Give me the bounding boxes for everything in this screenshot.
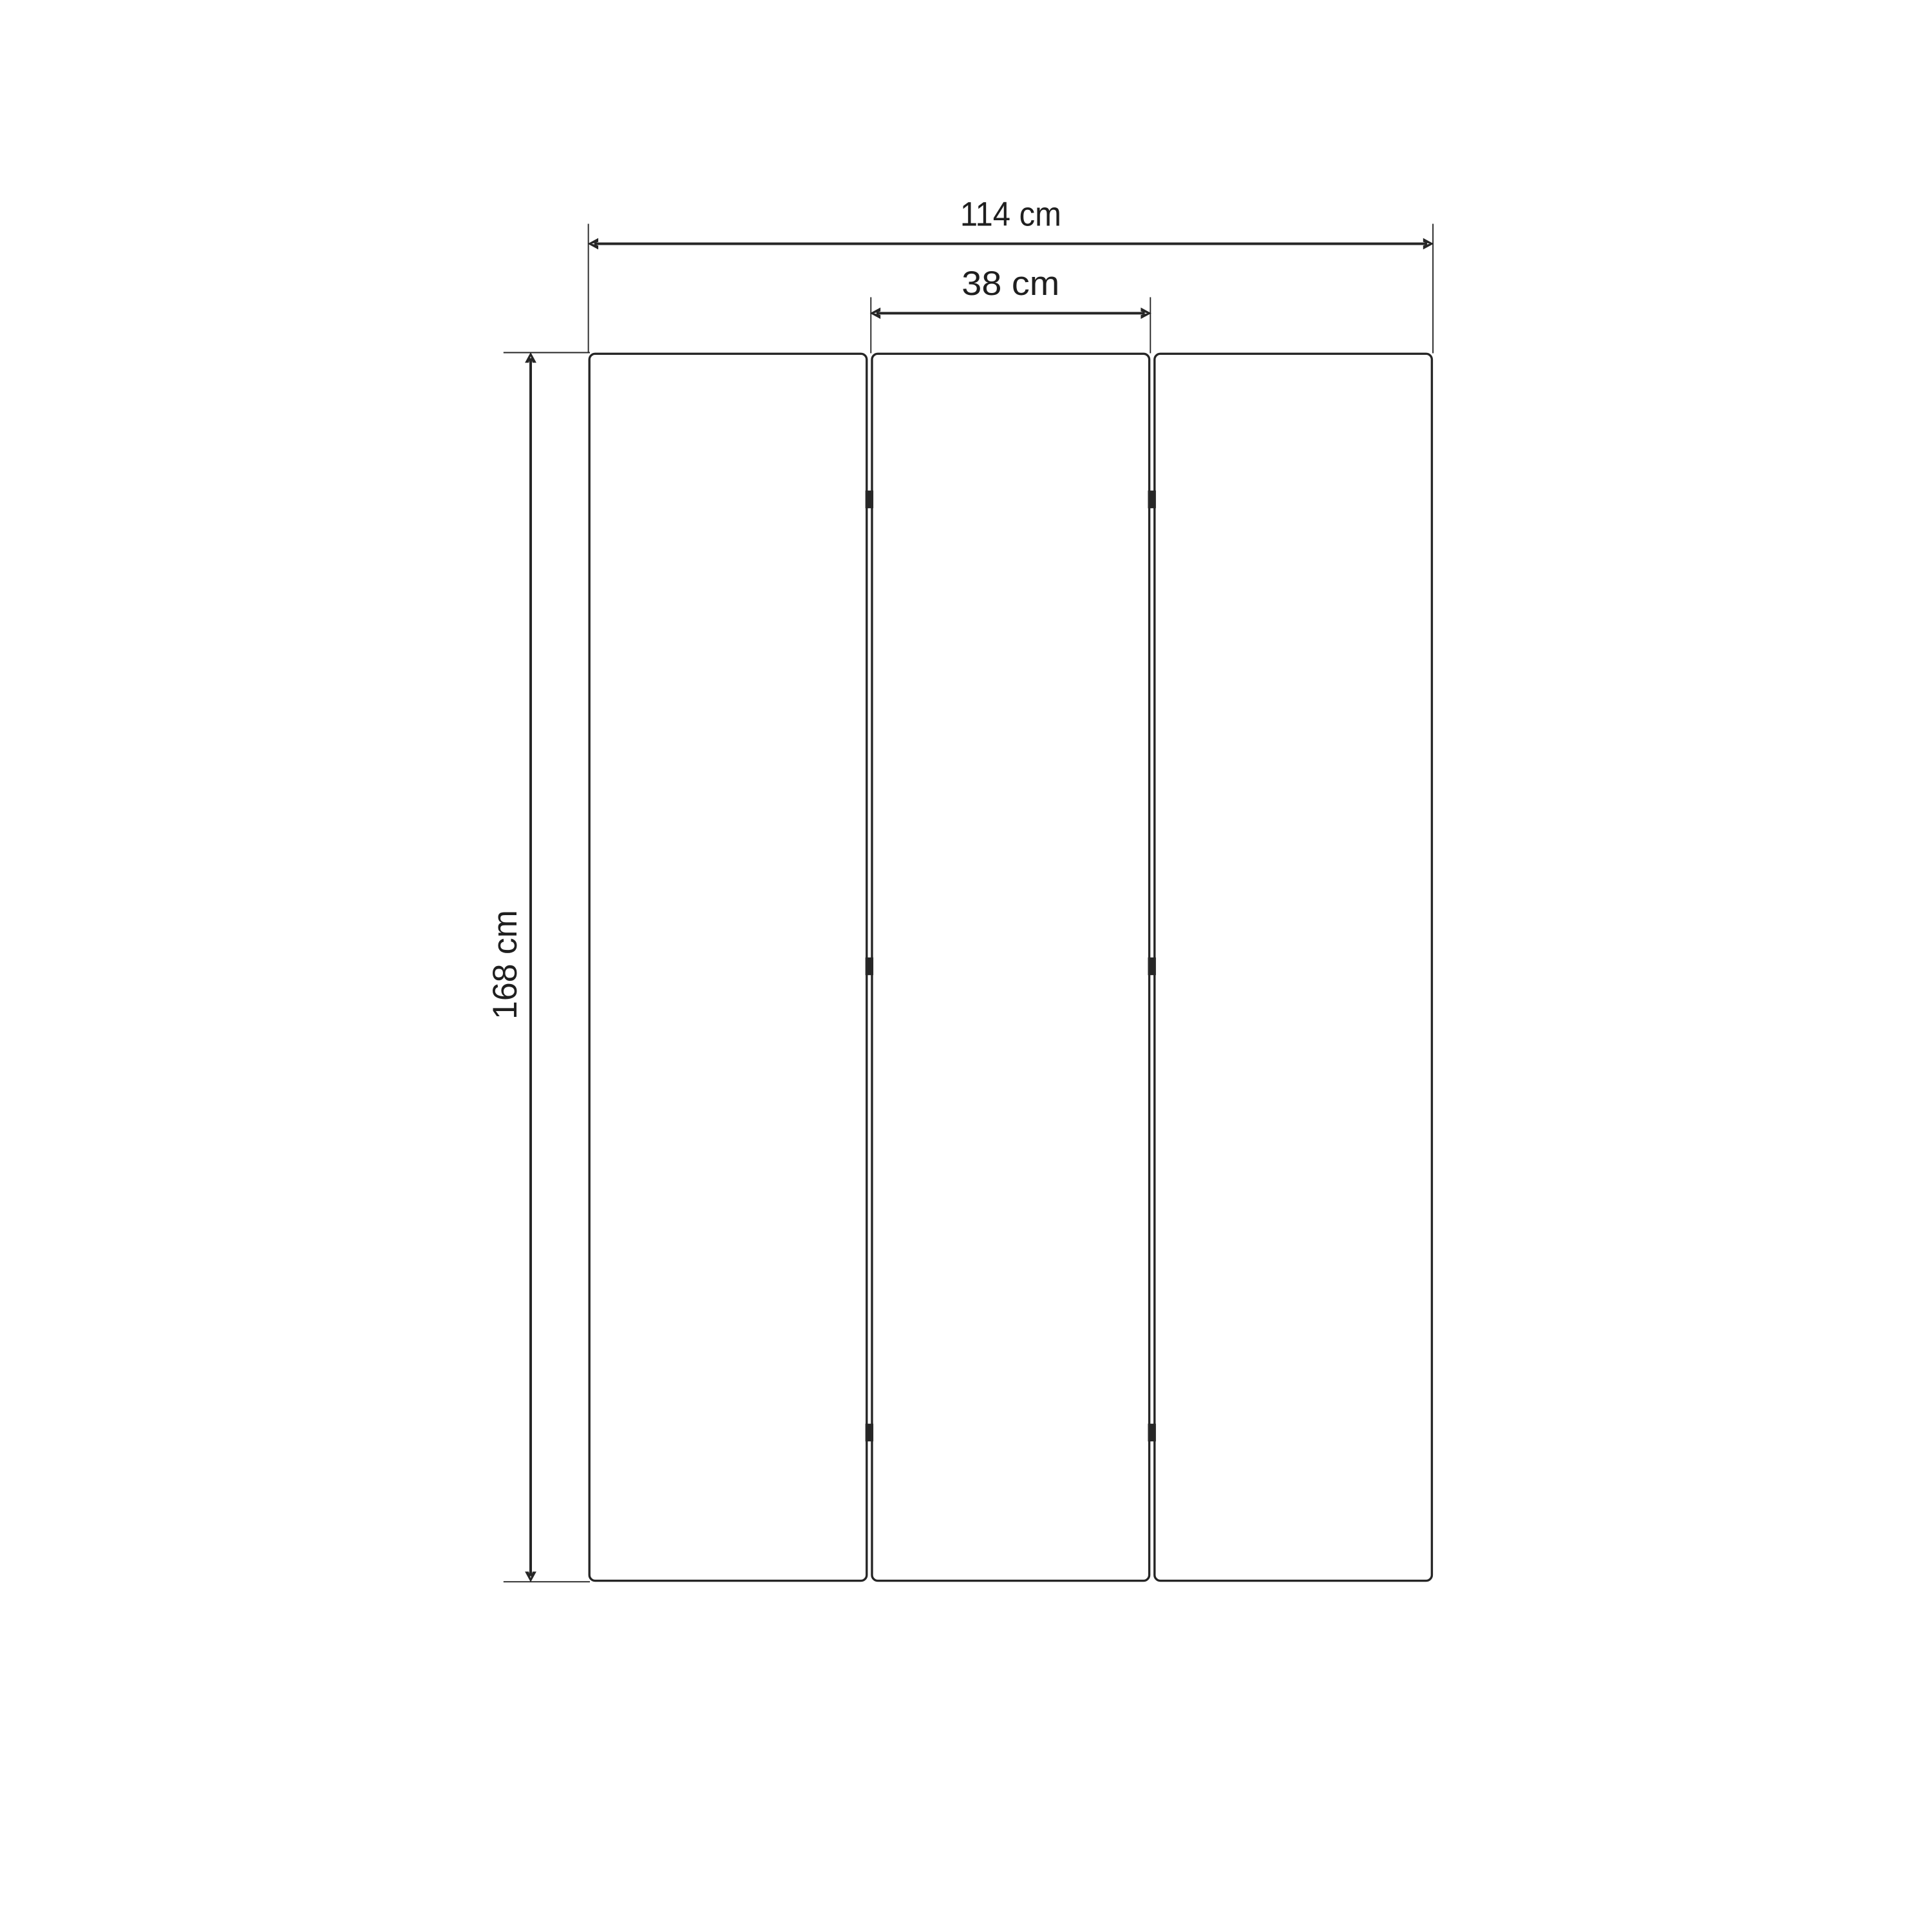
svg-text:114 cm: 114 cm <box>960 196 1061 234</box>
svg-text:38 cm: 38 cm <box>961 265 1059 303</box>
svg-text:168 cm: 168 cm <box>486 910 524 1019</box>
